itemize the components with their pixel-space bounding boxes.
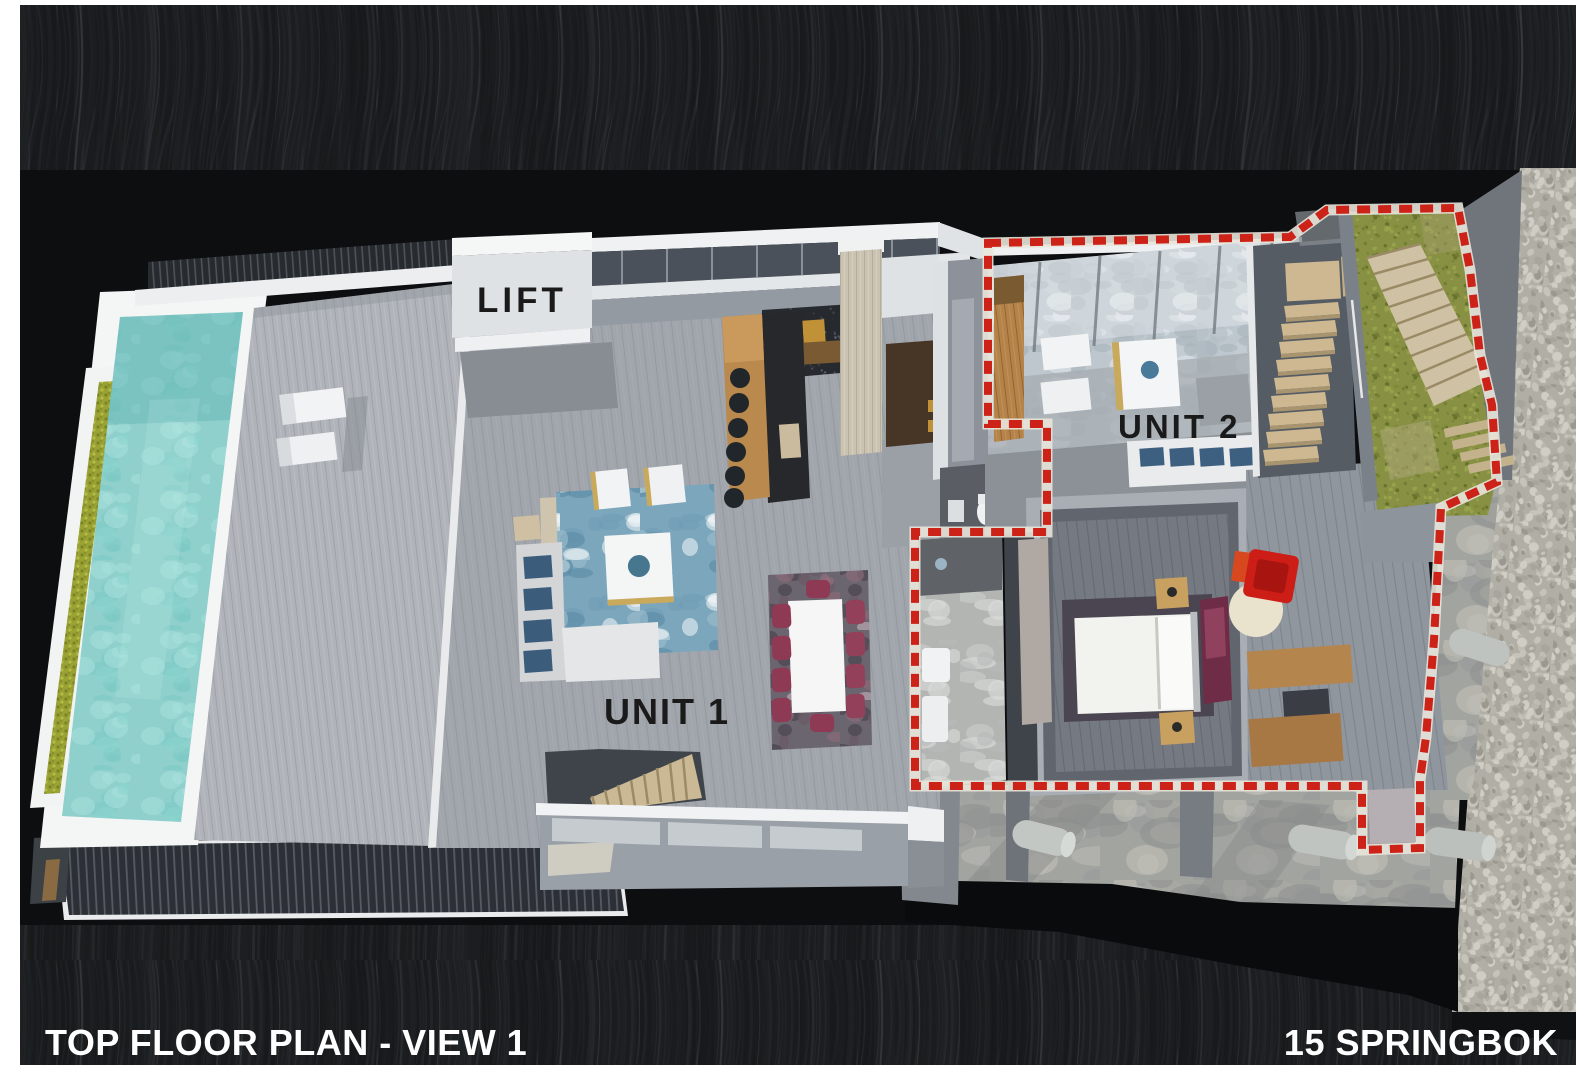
svg-text:UNIT 1: UNIT 1	[604, 691, 730, 732]
svg-text:LIFT: LIFT	[477, 281, 567, 320]
svg-text:UNIT 2: UNIT 2	[1118, 408, 1241, 445]
svg-text:TOP FLOOR PLAN - VIEW 1: TOP FLOOR PLAN - VIEW 1	[45, 1022, 527, 1063]
svg-text:15 SPRINGBOK: 15 SPRINGBOK	[1284, 1022, 1558, 1063]
